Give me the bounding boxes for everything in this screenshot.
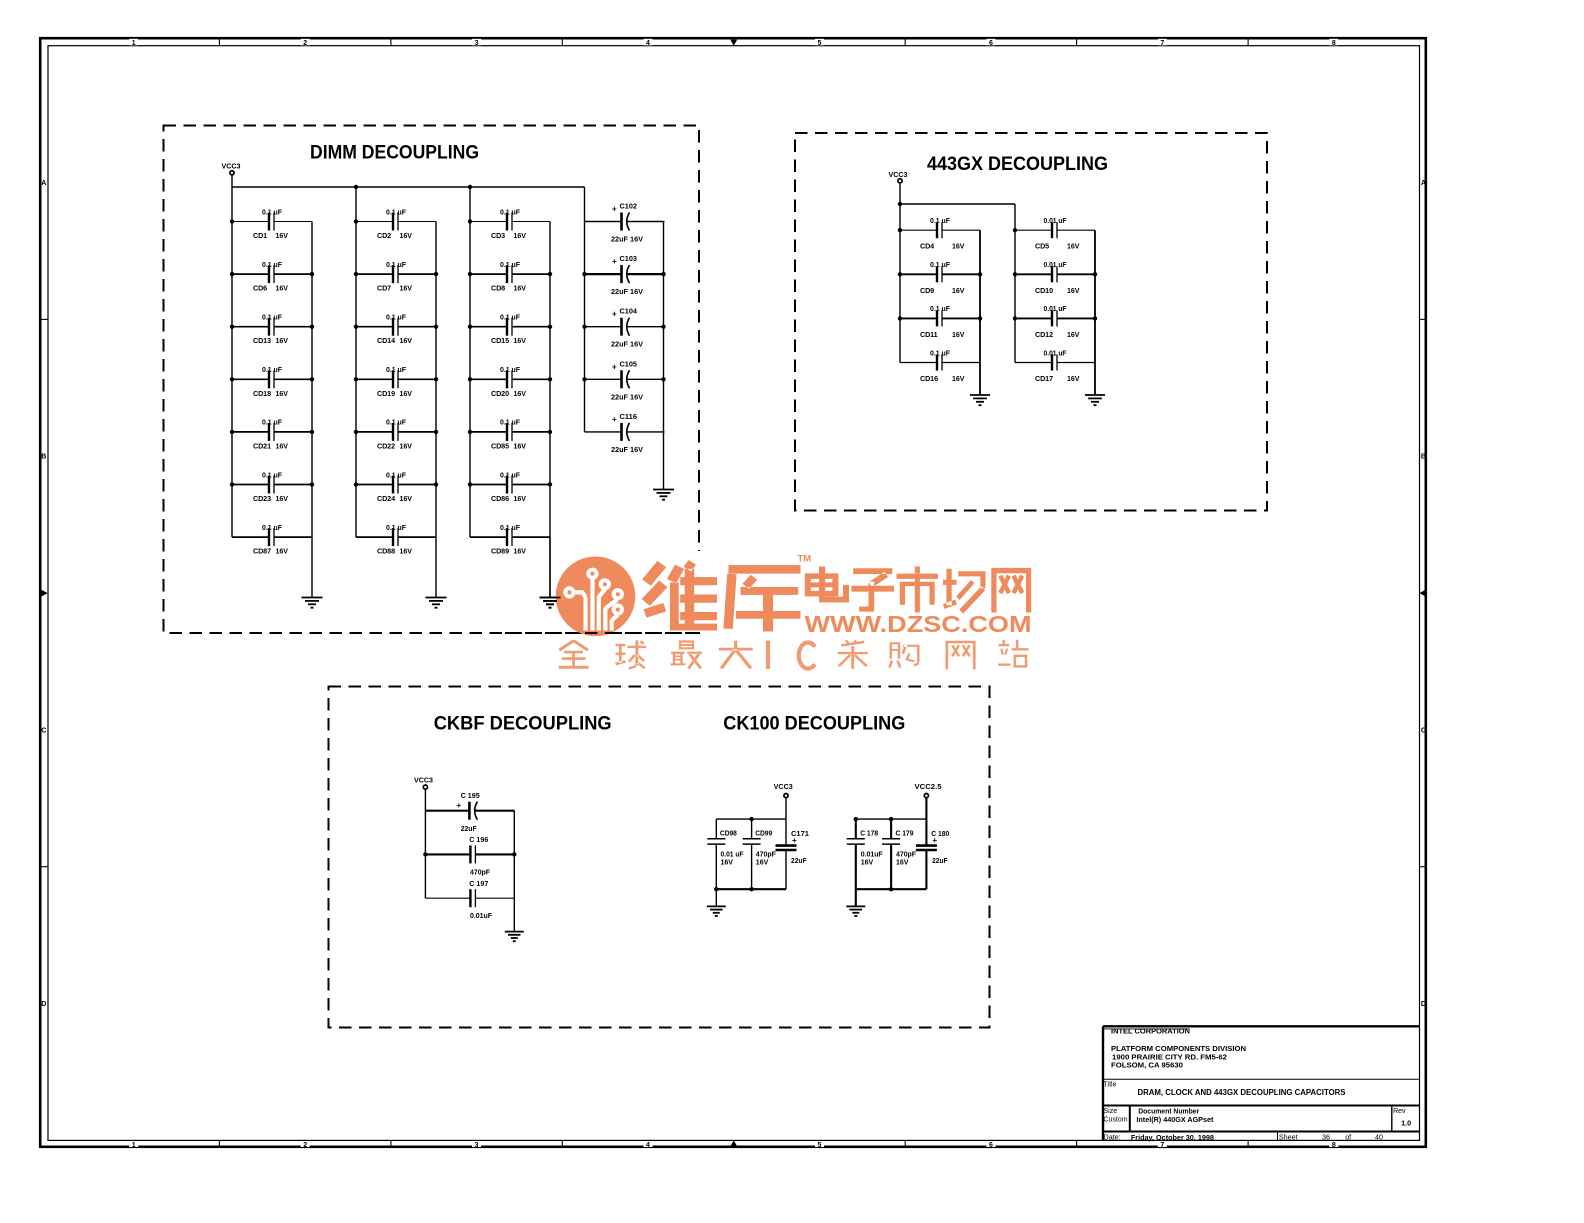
svg-text:0.1 uF: 0.1 uF <box>386 313 407 322</box>
svg-text:Sheet: Sheet <box>1279 1132 1298 1141</box>
svg-text:INTEL CORPORATION: INTEL CORPORATION <box>1111 1027 1190 1036</box>
svg-text:0.1 uF: 0.1 uF <box>500 313 521 322</box>
svg-text:1: 1 <box>132 40 136 47</box>
svg-text:Intel(R) 440GX AGPset: Intel(R) 440GX AGPset <box>1136 1115 1214 1124</box>
svg-text:CD85: CD85 <box>491 441 509 450</box>
svg-text:CD87: CD87 <box>253 547 271 556</box>
svg-text:C 179: C 179 <box>896 828 914 837</box>
svg-text:A: A <box>41 180 46 187</box>
svg-text:16V: 16V <box>1067 242 1080 251</box>
svg-text:WWW.DZSC.COM: WWW.DZSC.COM <box>805 611 1032 637</box>
svg-text:16V: 16V <box>514 284 527 293</box>
svg-text:5: 5 <box>818 1142 822 1149</box>
svg-text:16V: 16V <box>514 494 527 503</box>
svg-text:Rev: Rev <box>1393 1108 1406 1115</box>
svg-text:22uF: 22uF <box>461 824 478 833</box>
svg-text:B: B <box>1421 454 1426 461</box>
svg-text:CD17: CD17 <box>1035 374 1053 383</box>
svg-text:0.1 uF: 0.1 uF <box>386 207 407 216</box>
svg-text:16V: 16V <box>400 494 413 503</box>
svg-text:CD8: CD8 <box>491 284 505 293</box>
svg-text:Document Number: Document Number <box>1138 1106 1199 1115</box>
svg-text:16V: 16V <box>514 336 527 345</box>
svg-text:+: + <box>792 836 797 845</box>
svg-text:470pF: 470pF <box>470 867 491 876</box>
svg-text:22uF 16V: 22uF 16V <box>611 340 643 349</box>
svg-text:4: 4 <box>646 1142 650 1149</box>
svg-text:16V: 16V <box>276 494 289 503</box>
svg-text:0.1 uF: 0.1 uF <box>930 304 951 313</box>
svg-text:4: 4 <box>646 40 650 47</box>
svg-text:Friday, October 30, 1998: Friday, October 30, 1998 <box>1131 1133 1214 1142</box>
svg-text:16V: 16V <box>952 374 965 383</box>
svg-text:D: D <box>41 1001 46 1008</box>
svg-text:+: + <box>612 415 617 424</box>
svg-text:C 195: C 195 <box>461 791 480 800</box>
svg-text:22uF 16V: 22uF 16V <box>611 287 643 296</box>
svg-text:16V: 16V <box>400 547 413 556</box>
svg-text:A: A <box>1421 180 1426 187</box>
svg-text:CD10: CD10 <box>1035 286 1053 295</box>
svg-text:0.1 uF: 0.1 uF <box>500 365 521 374</box>
svg-text:5: 5 <box>818 40 822 47</box>
svg-text:FOLSOM, CA 95630: FOLSOM, CA 95630 <box>1111 1061 1183 1070</box>
svg-text:CD15: CD15 <box>491 336 509 345</box>
svg-text:C: C <box>41 727 46 734</box>
svg-text:16V: 16V <box>1067 330 1080 339</box>
svg-text:B: B <box>41 454 46 461</box>
svg-text:CD7: CD7 <box>377 284 391 293</box>
svg-text:22uF 16V: 22uF 16V <box>611 235 643 244</box>
svg-text:22uF: 22uF <box>791 856 807 865</box>
svg-text:6: 6 <box>989 1142 993 1149</box>
svg-text:CD13: CD13 <box>253 336 271 345</box>
svg-text:CD12: CD12 <box>1035 330 1053 339</box>
svg-text:16V: 16V <box>400 284 413 293</box>
svg-text:0.1 uF: 0.1 uF <box>500 260 521 269</box>
svg-text:0.01 uF: 0.01 uF <box>1044 260 1068 269</box>
svg-text:Date:: Date: <box>1104 1132 1121 1141</box>
svg-text:CKBF DECOUPLING: CKBF DECOUPLING <box>434 712 612 734</box>
svg-text:+: + <box>612 362 617 371</box>
svg-text:3: 3 <box>475 40 479 47</box>
svg-text:TM: TM <box>798 554 812 565</box>
svg-text:CD5: CD5 <box>1035 242 1049 251</box>
svg-text:0.1 uF: 0.1 uF <box>262 207 283 216</box>
svg-text:443GX DECOUPLING: 443GX DECOUPLING <box>927 153 1108 175</box>
svg-text:+: + <box>612 257 617 266</box>
svg-text:CD6: CD6 <box>253 284 267 293</box>
svg-text:CD11: CD11 <box>920 330 938 339</box>
svg-text:CD19: CD19 <box>377 389 395 398</box>
svg-text:16V: 16V <box>514 389 527 398</box>
svg-text:8: 8 <box>1332 1142 1336 1149</box>
svg-text:36: 36 <box>1322 1132 1330 1141</box>
svg-text:3: 3 <box>475 1142 479 1149</box>
svg-text:C 196: C 196 <box>469 835 488 844</box>
svg-text:CD14: CD14 <box>377 336 395 345</box>
svg-text:+: + <box>612 310 617 319</box>
svg-text:16V: 16V <box>276 547 289 556</box>
svg-text:CD2: CD2 <box>377 231 391 240</box>
svg-text:C116: C116 <box>620 412 638 421</box>
svg-text:CD3: CD3 <box>491 231 505 240</box>
svg-text:16V: 16V <box>952 330 965 339</box>
svg-text:VCC3: VCC3 <box>889 172 908 179</box>
svg-text:Custom: Custom <box>1104 1117 1128 1124</box>
svg-text:16V: 16V <box>896 858 909 867</box>
svg-text:2: 2 <box>303 40 307 47</box>
svg-text:CD20: CD20 <box>491 389 509 398</box>
svg-text:22uF 16V: 22uF 16V <box>611 392 643 401</box>
svg-text:16V: 16V <box>276 441 289 450</box>
svg-text:7: 7 <box>1160 1142 1164 1149</box>
svg-text:0.1 uF: 0.1 uF <box>500 418 521 427</box>
svg-text:C 197: C 197 <box>469 879 488 888</box>
svg-text:16V: 16V <box>276 231 289 240</box>
svg-text:16V: 16V <box>861 858 874 867</box>
svg-text:CD24: CD24 <box>377 494 395 503</box>
svg-text:0.1 uF: 0.1 uF <box>930 348 951 357</box>
svg-text:0.1 uF: 0.1 uF <box>930 260 951 269</box>
svg-text:0.1 uF: 0.1 uF <box>262 523 283 532</box>
svg-text:VCC3: VCC3 <box>414 778 433 785</box>
svg-text:0.1 uF: 0.1 uF <box>386 470 407 479</box>
svg-text:0.1 uF: 0.1 uF <box>262 313 283 322</box>
svg-text:0.1 uF: 0.1 uF <box>930 216 951 225</box>
svg-text:VCC3: VCC3 <box>774 784 793 791</box>
svg-text:16V: 16V <box>952 242 965 251</box>
svg-text:CD18: CD18 <box>253 389 271 398</box>
svg-text:CD9: CD9 <box>920 286 934 295</box>
svg-text:16V: 16V <box>756 858 769 867</box>
svg-text:16V: 16V <box>952 286 965 295</box>
svg-text:Title: Title <box>1104 1081 1117 1088</box>
svg-text:Size: Size <box>1104 1108 1118 1115</box>
svg-text:CD88: CD88 <box>377 547 395 556</box>
svg-text:0.1 uF: 0.1 uF <box>262 260 283 269</box>
svg-text:+: + <box>932 836 937 845</box>
svg-text:DIMM DECOUPLING: DIMM DECOUPLING <box>310 142 479 164</box>
svg-text:+: + <box>457 801 462 810</box>
svg-text:CD22: CD22 <box>377 441 395 450</box>
svg-text:CK100 DECOUPLING: CK100 DECOUPLING <box>723 712 905 734</box>
svg-text:16V: 16V <box>276 284 289 293</box>
svg-text:0.1 uF: 0.1 uF <box>262 365 283 374</box>
svg-text:C 178: C 178 <box>860 828 878 837</box>
svg-text:0.1 uF: 0.1 uF <box>386 523 407 532</box>
svg-text:16V: 16V <box>514 441 527 450</box>
svg-text:2: 2 <box>303 1142 307 1149</box>
svg-text:0.1 uF: 0.1 uF <box>500 523 521 532</box>
svg-text:16V: 16V <box>400 441 413 450</box>
svg-text:CD99: CD99 <box>755 828 772 837</box>
svg-text:C: C <box>1421 727 1426 734</box>
svg-text:CD23: CD23 <box>253 494 271 503</box>
svg-text:0.1 uF: 0.1 uF <box>386 365 407 374</box>
svg-text:C102: C102 <box>620 202 638 211</box>
svg-text:1.0: 1.0 <box>1401 1119 1411 1128</box>
svg-text:16V: 16V <box>400 336 413 345</box>
svg-text:16V: 16V <box>514 231 527 240</box>
svg-text:CD4: CD4 <box>920 242 934 251</box>
svg-text:16V: 16V <box>721 858 734 867</box>
svg-text:0.1 uF: 0.1 uF <box>386 418 407 427</box>
svg-text:CD86: CD86 <box>491 494 509 503</box>
svg-text:CD89: CD89 <box>491 547 509 556</box>
svg-text:16V: 16V <box>400 231 413 240</box>
svg-text:+: + <box>612 205 617 214</box>
svg-text:0.01 uF: 0.01 uF <box>1044 304 1068 313</box>
svg-text:1: 1 <box>132 1142 136 1149</box>
svg-text:8: 8 <box>1332 40 1336 47</box>
svg-text:VCC2.5: VCC2.5 <box>915 784 942 791</box>
svg-text:CD21: CD21 <box>253 441 271 450</box>
svg-text:22uF 16V: 22uF 16V <box>611 445 643 454</box>
svg-text:16V: 16V <box>1067 286 1080 295</box>
svg-text:6: 6 <box>989 40 993 47</box>
svg-text:16V: 16V <box>276 336 289 345</box>
svg-text:DRAM, CLOCK AND 443GX DECOU: DRAM, CLOCK AND 443GX DECOUPLING CAPACIT… <box>1138 1088 1346 1097</box>
svg-text:0.01 uF: 0.01 uF <box>1044 216 1068 225</box>
svg-text:0.1 uF: 0.1 uF <box>500 470 521 479</box>
svg-text:0.01uF: 0.01uF <box>470 911 493 920</box>
svg-text:of: of <box>1345 1132 1351 1141</box>
svg-text:VCC3: VCC3 <box>222 164 241 171</box>
svg-text:0.01 uF: 0.01 uF <box>1044 348 1068 357</box>
svg-text:D: D <box>1421 1001 1426 1008</box>
svg-text:16V: 16V <box>400 389 413 398</box>
svg-text:0.1 uF: 0.1 uF <box>500 207 521 216</box>
svg-text:CD1: CD1 <box>253 231 267 240</box>
svg-text:CD16: CD16 <box>920 374 938 383</box>
svg-text:C105: C105 <box>620 359 638 368</box>
svg-text:16V: 16V <box>1067 374 1080 383</box>
svg-text:40: 40 <box>1375 1132 1383 1141</box>
svg-text:16V: 16V <box>276 389 289 398</box>
svg-text:7: 7 <box>1160 40 1164 47</box>
svg-text:C103: C103 <box>620 254 638 263</box>
svg-text:CD98: CD98 <box>720 828 737 837</box>
svg-text:0.1 uF: 0.1 uF <box>262 418 283 427</box>
svg-text:22uF: 22uF <box>932 856 948 865</box>
svg-text:16V: 16V <box>514 547 527 556</box>
svg-text:C104: C104 <box>620 307 638 316</box>
svg-text:0.1 uF: 0.1 uF <box>386 260 407 269</box>
svg-text:0.1 uF: 0.1 uF <box>262 470 283 479</box>
